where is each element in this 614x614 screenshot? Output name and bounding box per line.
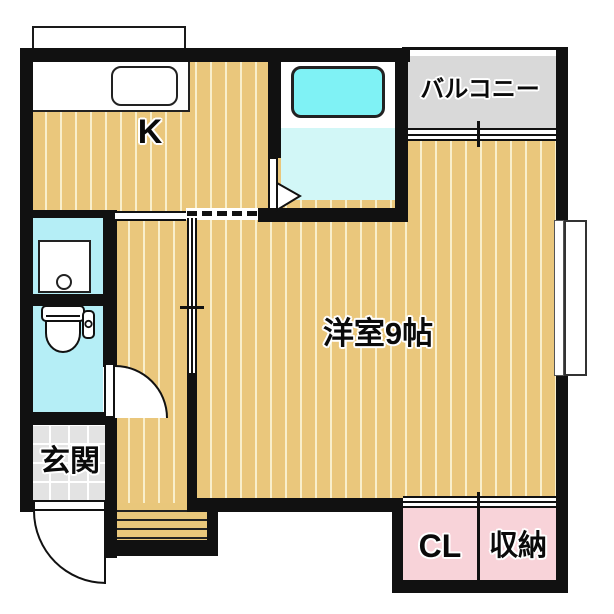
floor-plan: K バルコニー 洋室9帖 玄関 CL 収納 [0,0,614,614]
balcony-window-midline [408,134,556,136]
bathroom-door-leaf [268,157,278,210]
wall-right-bottom [556,376,568,593]
wall-washroom-top [32,210,103,218]
bathroom-door-swing-icon [276,182,302,212]
balcony-railing [402,47,568,50]
side-window-outer [564,220,587,376]
wall-partition [187,373,197,512]
wall-bottom-right [392,580,568,593]
closet-storage-label: 収納 [480,528,556,564]
wall-left [20,48,33,512]
kitchen-window-ledge [32,26,186,50]
bathtub [291,66,385,118]
toilet-icon [36,300,100,362]
balcony-label: バルコニー [404,76,556,104]
entrance-door-arc [33,511,106,584]
kitchen-label: K [115,112,185,152]
hallway-floor [115,213,197,507]
kitchen-sink [111,66,178,106]
wall-mainroom-bottom [187,498,403,512]
kitchen-hallway-sliding-door [115,211,186,221]
wall-bathroom-right [395,48,408,220]
wall-entrance-right [105,412,117,558]
wall-washroom-toilet [32,294,103,306]
drain-circle [56,274,72,290]
wall-washroom-right [103,210,117,367]
entrance-label: 玄関 [22,444,118,480]
partition-tick [180,306,204,309]
side-window-inner [554,220,564,376]
toilet-door-leaf [104,363,115,418]
balcony-window-tick [477,121,480,147]
wall-top [20,48,410,62]
closet-cl-label: CL [403,528,477,564]
wall-step-bottom [105,540,218,556]
partition-midline [191,218,193,373]
wall-right-top [556,48,568,220]
open-boundary-dashes [187,211,257,216]
wall-bathroom-left [268,48,281,158]
entrance-door-leaf [33,500,106,511]
closet-doors-tick [477,492,480,512]
main-room-label: 洋室9帖 [258,314,498,354]
wall-entrance-top [20,412,115,425]
